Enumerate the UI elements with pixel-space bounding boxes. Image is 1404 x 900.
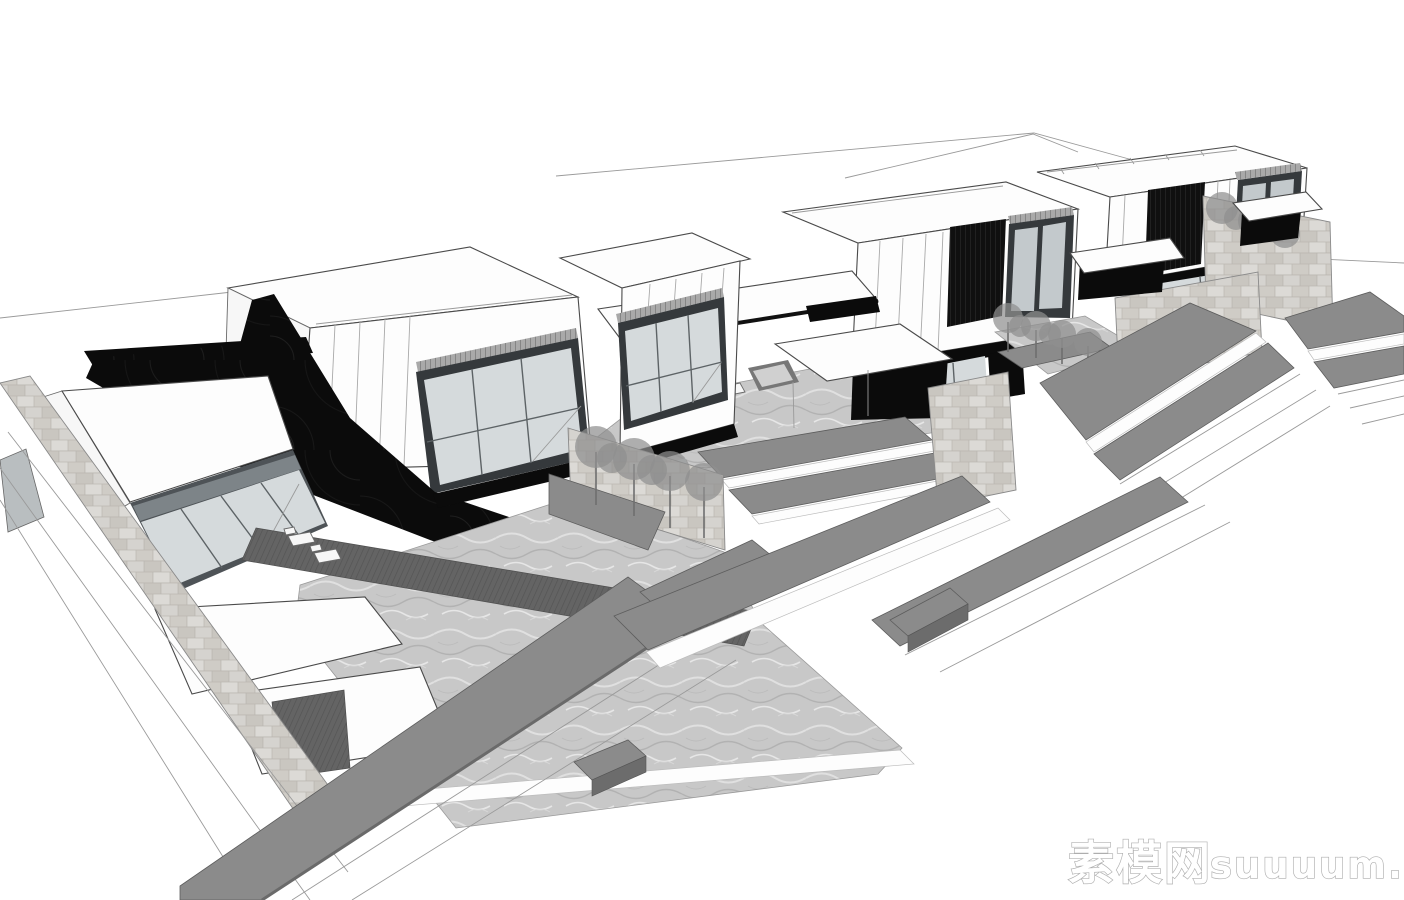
scene-canvas: 素模网 suuuum.com [0, 0, 1404, 900]
watermark-cn: 素模网 [1068, 836, 1212, 890]
watermark: 素模网 suuuum.com [1068, 836, 1404, 890]
architectural-render: 素模网 suuuum.com [0, 0, 1404, 900]
watermark-latin: suuuum.com [1210, 844, 1404, 887]
